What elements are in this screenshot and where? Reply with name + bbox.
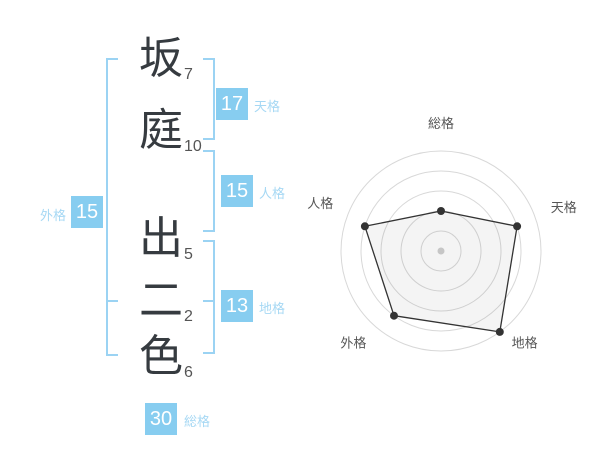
radar-polygon xyxy=(365,211,517,332)
stroke-count: 5 xyxy=(184,246,193,264)
gaikaku-score-value: 15 xyxy=(76,201,98,224)
tenkaku-label: 天格 xyxy=(254,96,280,115)
radar-axis-label-gaikaku: 外格 xyxy=(340,336,366,351)
gaikaku-label: 外格 xyxy=(34,205,66,224)
soukaku-score-value: 30 xyxy=(150,408,172,431)
name-character: 出 xyxy=(138,217,184,261)
jinkaku-score-badge: 15 xyxy=(221,175,253,207)
radar-chart: 総格天格地格外格人格 xyxy=(295,100,595,370)
chikaku-score-value: 13 xyxy=(226,295,248,318)
name-character-row: 坂 7 xyxy=(138,37,184,81)
stroke-count: 2 xyxy=(184,308,193,326)
tenkaku-bracket-tick xyxy=(203,58,215,60)
stroke-count: 10 xyxy=(184,138,202,156)
chikaku-bracket-tick xyxy=(203,240,215,242)
soukaku-label: 総格 xyxy=(184,411,210,430)
radar-point-tenkaku xyxy=(513,222,521,230)
radar-axis-label-chikaku: 地格 xyxy=(512,336,538,351)
gaikaku-bracket-tick xyxy=(106,300,118,302)
radar-point-chikaku xyxy=(496,328,504,336)
chikaku-label: 地格 xyxy=(259,298,285,317)
gaikaku-bracket-line xyxy=(106,58,108,356)
radar-axis-label-soukaku: 総格 xyxy=(428,116,454,131)
name-character: 色 xyxy=(138,335,184,379)
jinkaku-bracket-line xyxy=(213,150,215,232)
name-character-row: 二 2 xyxy=(138,279,184,323)
name-character-row: 出 5 xyxy=(138,217,184,261)
name-character: 坂 xyxy=(138,37,184,81)
stroke-count: 6 xyxy=(184,364,193,382)
chikaku-score-badge: 13 xyxy=(221,290,253,322)
gaikaku-score-badge: 15 xyxy=(71,196,103,228)
gaikaku-bracket-tick xyxy=(106,58,118,60)
chikaku-bracket-line xyxy=(213,240,215,354)
seimei-handan-panel: 坂 7 庭 10 出 5 二 2 色 6 17 天格 15 人格 13 地 xyxy=(0,0,600,470)
jinkaku-bracket-tick xyxy=(203,150,215,152)
chikaku-bracket-tick xyxy=(203,352,215,354)
chikaku-bracket-tick xyxy=(203,300,215,302)
tenkaku-score-value: 17 xyxy=(221,93,243,116)
name-character-row: 色 6 xyxy=(138,335,184,379)
tenkaku-score-badge: 17 xyxy=(216,88,248,120)
radar-chart-svg: 総格天格地格外格人格 xyxy=(295,100,595,370)
radar-axis-label-tenkaku: 天格 xyxy=(551,200,577,215)
jinkaku-label: 人格 xyxy=(259,183,285,202)
radar-point-soukaku xyxy=(437,207,445,215)
tenkaku-bracket-tick xyxy=(203,138,215,140)
name-character: 二 xyxy=(138,279,184,323)
name-character: 庭 xyxy=(138,109,184,153)
jinkaku-bracket-tick xyxy=(203,230,215,232)
radar-center-dot xyxy=(438,248,445,255)
soukaku-score-badge: 30 xyxy=(145,403,177,435)
stroke-count: 7 xyxy=(184,66,193,84)
jinkaku-score-value: 15 xyxy=(226,180,248,203)
radar-point-gaikaku xyxy=(390,312,398,320)
tenkaku-bracket-line xyxy=(213,58,215,140)
gaikaku-bracket-tick xyxy=(106,354,118,356)
radar-axis-label-jinkaku: 人格 xyxy=(307,196,333,211)
name-character-row: 庭 10 xyxy=(138,109,184,153)
radar-point-jinkaku xyxy=(361,222,369,230)
